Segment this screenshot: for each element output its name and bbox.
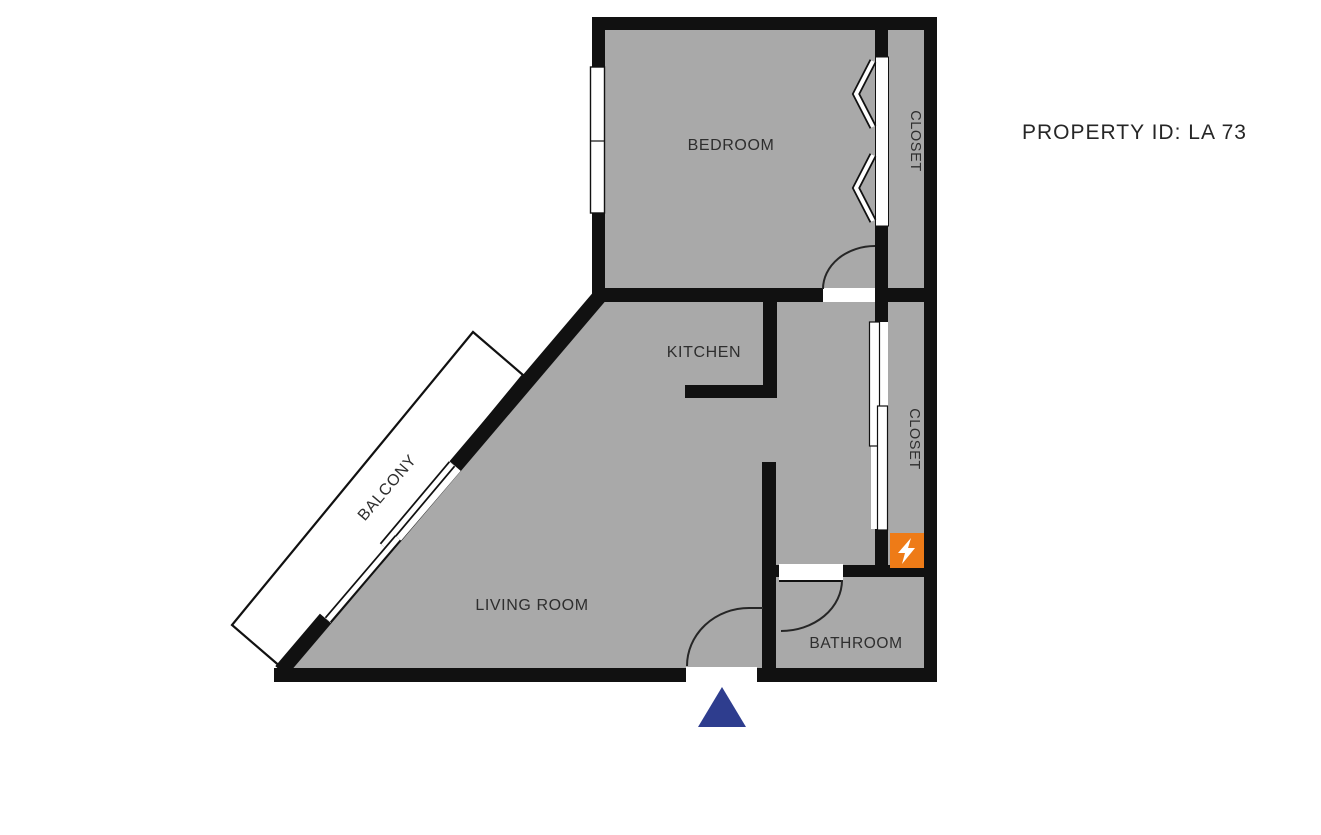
wall-bedroom-bottom-left <box>592 288 823 302</box>
wall-living-bathroom <box>762 462 776 668</box>
bathroom-label: BATHROOM <box>809 635 902 652</box>
wall-bottom <box>274 668 937 682</box>
closet-bedroom-label: CLOSET <box>907 110 923 172</box>
property-id-label: PROPERTY ID: LA 73 <box>1022 121 1247 144</box>
wall-top <box>592 17 937 30</box>
entry-door-threshold <box>686 667 757 683</box>
wall-kitchen-vertical <box>763 300 777 398</box>
apartment-floor <box>276 17 937 682</box>
wall-kitchen-horizontal <box>685 385 777 398</box>
closet-hall-sliding-doors <box>870 322 889 530</box>
bedroom-label: BEDROOM <box>688 137 775 154</box>
bathroom-door-threshold <box>779 564 843 580</box>
bedroom-window <box>590 67 605 213</box>
wall-right <box>924 17 937 682</box>
wall-closet1-stub-top <box>875 30 888 58</box>
floor-plan-canvas: BEDROOM KITCHEN LIVING ROOM BATHROOM CLO… <box>0 0 1321 835</box>
wall-closet2-stub-top <box>875 300 888 323</box>
kitchen-label: KITCHEN <box>667 344 741 361</box>
living-room-label: LIVING ROOM <box>475 597 588 614</box>
wall-closet1-stub-bottom <box>875 226 888 288</box>
wall-closet2-stub-bottom <box>875 529 888 568</box>
closet-hall-label: CLOSET <box>906 408 922 470</box>
entrance-marker-triangle-icon <box>698 687 746 727</box>
floor-plan-svg: BEDROOM KITCHEN LIVING ROOM BATHROOM CLO… <box>0 0 1321 835</box>
electrical-panel <box>890 533 924 568</box>
wall-bedroom-bottom-right <box>875 288 937 302</box>
bedroom-door-threshold <box>823 288 875 302</box>
